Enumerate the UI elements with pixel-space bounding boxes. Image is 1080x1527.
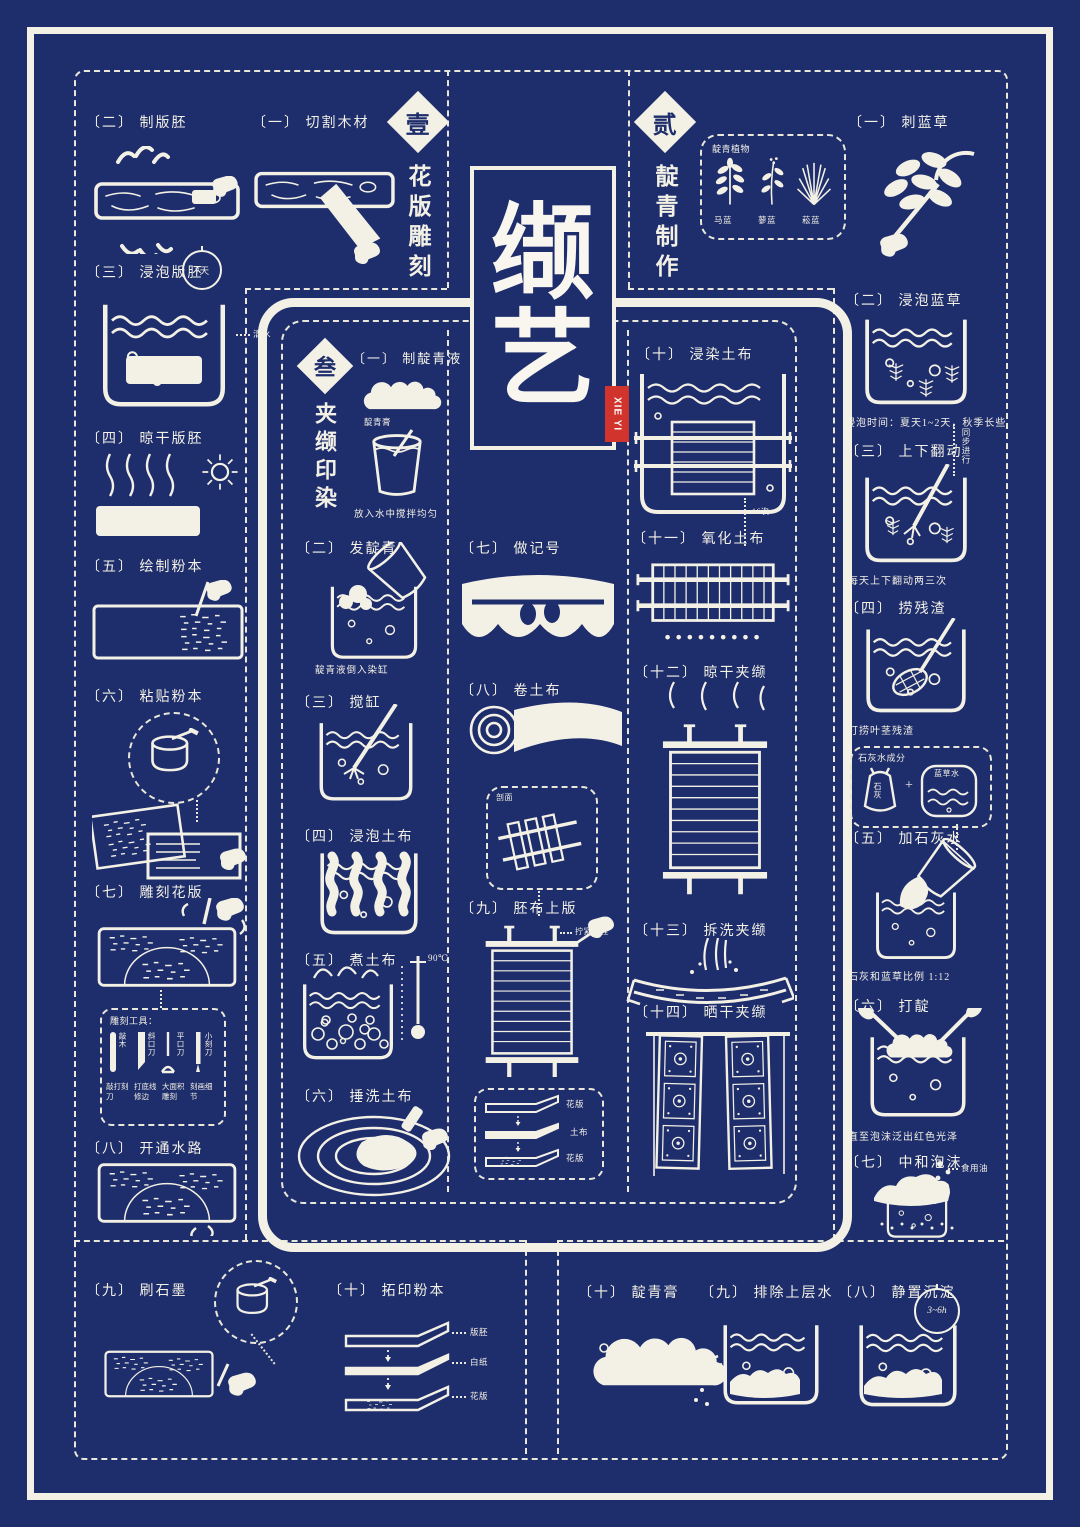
ink-jar-icon [232,1276,278,1324]
sec3-step11-label: 〔十一〕 氧化土布 [632,528,766,548]
open-waterway-icon [92,1160,248,1236]
sandwich-label-1: 花版 [566,1098,584,1110]
leader-bolt [560,932,572,934]
sec3-step10-label: 〔十〕 浸染土布 [636,344,754,364]
poster-root: 缬 艺 XIE YI 壹 花版雕刻 〔二〕 制版胚 〔一〕 切割木材 〔三〕 浸… [0,0,1080,1527]
layer-diagram-icon [336,1314,466,1426]
layer-label-1: 版胚 [470,1326,488,1338]
boil-cloth-icon [296,948,446,1070]
sec2-step10-label: 〔十〕 靛青膏 [578,1282,680,1302]
sec1-step3-note: 清水 [253,328,271,340]
leader-oil [948,1168,958,1170]
duration-badge-7d: 7天 [182,250,222,290]
tool-name-2: 斜口刀 [146,1032,157,1056]
dry-plank-sun-icon [92,448,244,544]
divider-sec2-left [628,70,630,288]
sec3-title: 夹缬印染 [308,402,340,552]
tool-use-1: 敲打刻刀 [106,1082,132,1102]
sec3-step9-note: 拧紧螺栓 [575,926,609,937]
tool-name-1: 敲木 [117,1032,128,1048]
sandwich-label-2: 土布 [570,1126,588,1138]
tool-name-3: 平口刀 [175,1032,186,1056]
leader-layer1 [452,1332,466,1334]
sun-dry-cloth-icon [644,1024,792,1188]
sec3-step9-label: 〔九〕 胚布上版 [460,898,578,918]
mid-divider-1 [447,330,449,1192]
divider-bottommid-left [557,1240,559,1454]
sec1-title: 花版雕刻 [400,164,434,324]
sec1-step6-label: 〔六〕 粘贴粉本 [86,686,204,706]
bluegrass-water-text: 蓝草水 [934,768,960,779]
sec2-step2-label: 〔二〕 浸泡蓝草 [845,290,963,310]
title-logo-char-bottom: 艺 [491,308,595,414]
sec2-step4-note: 打捞叶茎残渣 [848,722,914,737]
sec2-step2-note: 浸泡时间：夏天1~2天，秋季长些 [845,414,1006,429]
sec2-step7-note: 食用油 [961,1162,988,1174]
indigo-paste-small-cloud [356,370,448,414]
leader-tools [160,990,162,1008]
sec1-step4-label: 〔四〕 晾干版胚 [86,428,204,448]
sec2-step1-label: 〔一〕 刺蓝草 [848,112,950,132]
divider-leftcol-right [245,288,247,1240]
pour-lime-icon [854,838,990,964]
dye-dip-tank-icon [634,368,792,520]
carve-plate-icon [92,898,248,990]
sec3-step1-label: 〔一〕 制靛青液 [352,348,462,367]
sec3-step13-label: 〔十三〕 拆洗夹缬 [634,920,768,940]
dry-clamp-stack-icon [644,678,786,906]
draw-draft-icon [92,580,247,668]
scoop-net-tank-icon [856,618,976,716]
layer-label-3: 花版 [470,1390,488,1402]
sec1-step10-label: 〔十〕 拓印粉本 [328,1280,446,1300]
stir-vat-icon [308,704,426,804]
sec3-step14-label: 〔十四〕 晒干夹缬 [634,1002,768,1022]
title-red-seal: XIE YI [605,386,629,442]
settle-tank-icon [848,1316,968,1416]
sec3-step1-note: 放入水中搅拌均匀 [354,506,438,520]
pour-indigo-icon [308,542,440,662]
sec2-step3-side: 同步进行 [960,428,972,464]
oxidize-stack-icon [634,550,792,652]
sec2-step5-note: 石灰和蓝草比例 1:12 [848,968,950,983]
section-view-label: 剖面 [496,792,513,803]
divider-bottomleft-right [525,1240,527,1454]
sec2-step6-note: 直至泡沫泛出红色光泽 [848,1128,958,1143]
sandwich-diagram-icon [480,1092,580,1172]
drain-water-tank-icon [694,1316,830,1416]
sec3-step11-note: 16次 [752,506,770,517]
sec2-title: 靛青制作 [647,164,681,324]
sec1-step8-label: 〔八〕 开通水路 [86,1138,204,1158]
sec2-step9-label: 〔九〕 排除上层水 [700,1282,834,1302]
sec3-step2-note: 靛青液倒入染缸 [315,662,389,676]
sec2-step4-label: 〔四〕 捞残渣 [845,598,947,618]
sec1-step2-label: 〔二〕 制版胚 [86,112,188,132]
stir-rake-tank-icon [856,464,976,566]
lime-bag-text: 石灰 [872,782,883,799]
brush-graphite-icon [100,1342,260,1422]
beat-indigo-icon [852,1008,988,1120]
sickle-harvest-icon [852,140,998,258]
tool-use-3: 大面积雕刻 [162,1082,188,1102]
sec3-step1-cloud-label: 靛青膏 [364,416,391,428]
title-logo-box: 缬 艺 [470,166,616,450]
sec2-step3-note: 每天上下翻动两三次 [848,572,947,587]
leader-clearwater [236,334,250,336]
soak-cloth-tank-icon [306,842,432,940]
sec1-step1-label: 〔一〕 切割木材 [252,112,370,132]
mix-bucket-icon [364,428,432,502]
sandwich-label-3: 花版 [566,1152,584,1164]
clamp-section-icon [496,806,584,878]
wash-basin-icon [296,1102,454,1198]
plant-name-1: 马蓝 [714,214,732,226]
cloth-roll-icon [456,694,626,778]
soak-leaves-tank-icon [856,314,976,410]
sec1-step5-label: 〔五〕 绘制粉本 [86,556,204,576]
paste-draft-icon [92,800,248,884]
title-logo-char-top: 缬 [491,202,595,308]
plants-box-label: 靛青植物 [712,142,750,155]
plant-name-2: 蓼蓝 [758,214,776,226]
sec1-step9-label: 〔九〕 刷石墨 [86,1280,188,1300]
layer-label-2: 白纸 [470,1356,488,1368]
mid-divider-2 [627,330,629,1192]
sec2-step3-label: 〔三〕 上下翻动 [845,441,963,461]
paste-jar-icon [146,728,200,782]
saw-plank-icon [252,146,400,268]
tool-use-2: 打底线修边 [134,1082,160,1102]
plus-sign: + [905,778,913,794]
clamp-stack-icon [460,916,616,1088]
soak-tank-icon [96,294,232,412]
mark-cloth-icon [450,562,626,660]
tool-name-4: 小刻刀 [203,1032,214,1056]
sec3-step7-label: 〔七〕 做记号 [460,538,562,558]
limewater-label: 石灰水成分 [858,751,906,764]
tool-use-4: 刻画细节 [190,1082,216,1102]
divider-sec1-title [447,70,449,288]
plant-name-3: 菘蓝 [802,214,820,226]
tools-box-label: 雕刻工具： [110,1014,158,1027]
leader-layer2 [452,1362,466,1364]
plants-icons [706,156,836,208]
leader-layer3 [452,1396,466,1398]
plank-chisel-icon [92,146,244,254]
